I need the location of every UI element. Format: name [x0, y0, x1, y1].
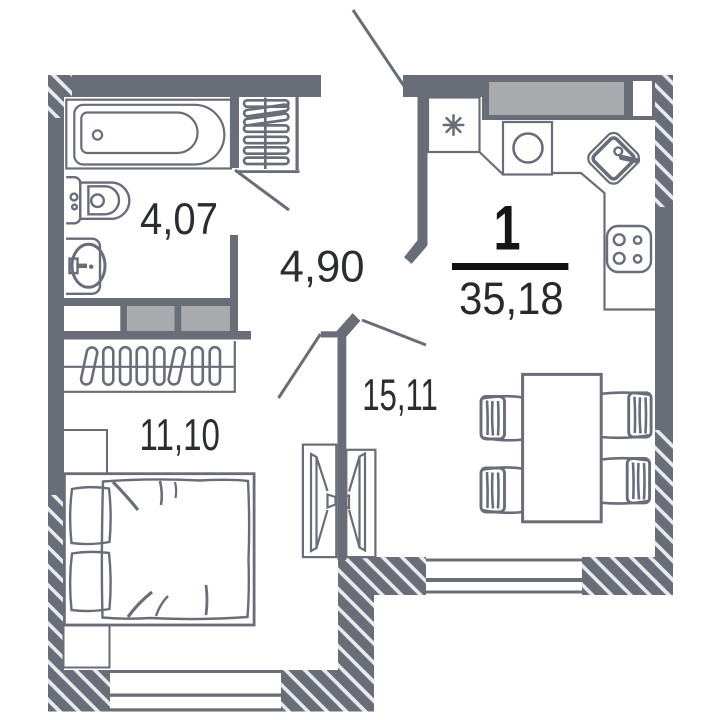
- svg-text:15,11: 15,11: [362, 371, 438, 420]
- svg-text:4,07: 4,07: [140, 195, 218, 244]
- svg-text:4,90: 4,90: [280, 243, 365, 292]
- svg-text:11,10: 11,10: [140, 411, 220, 460]
- svg-text:35,18: 35,18: [459, 273, 563, 324]
- svg-text:1: 1: [494, 193, 521, 263]
